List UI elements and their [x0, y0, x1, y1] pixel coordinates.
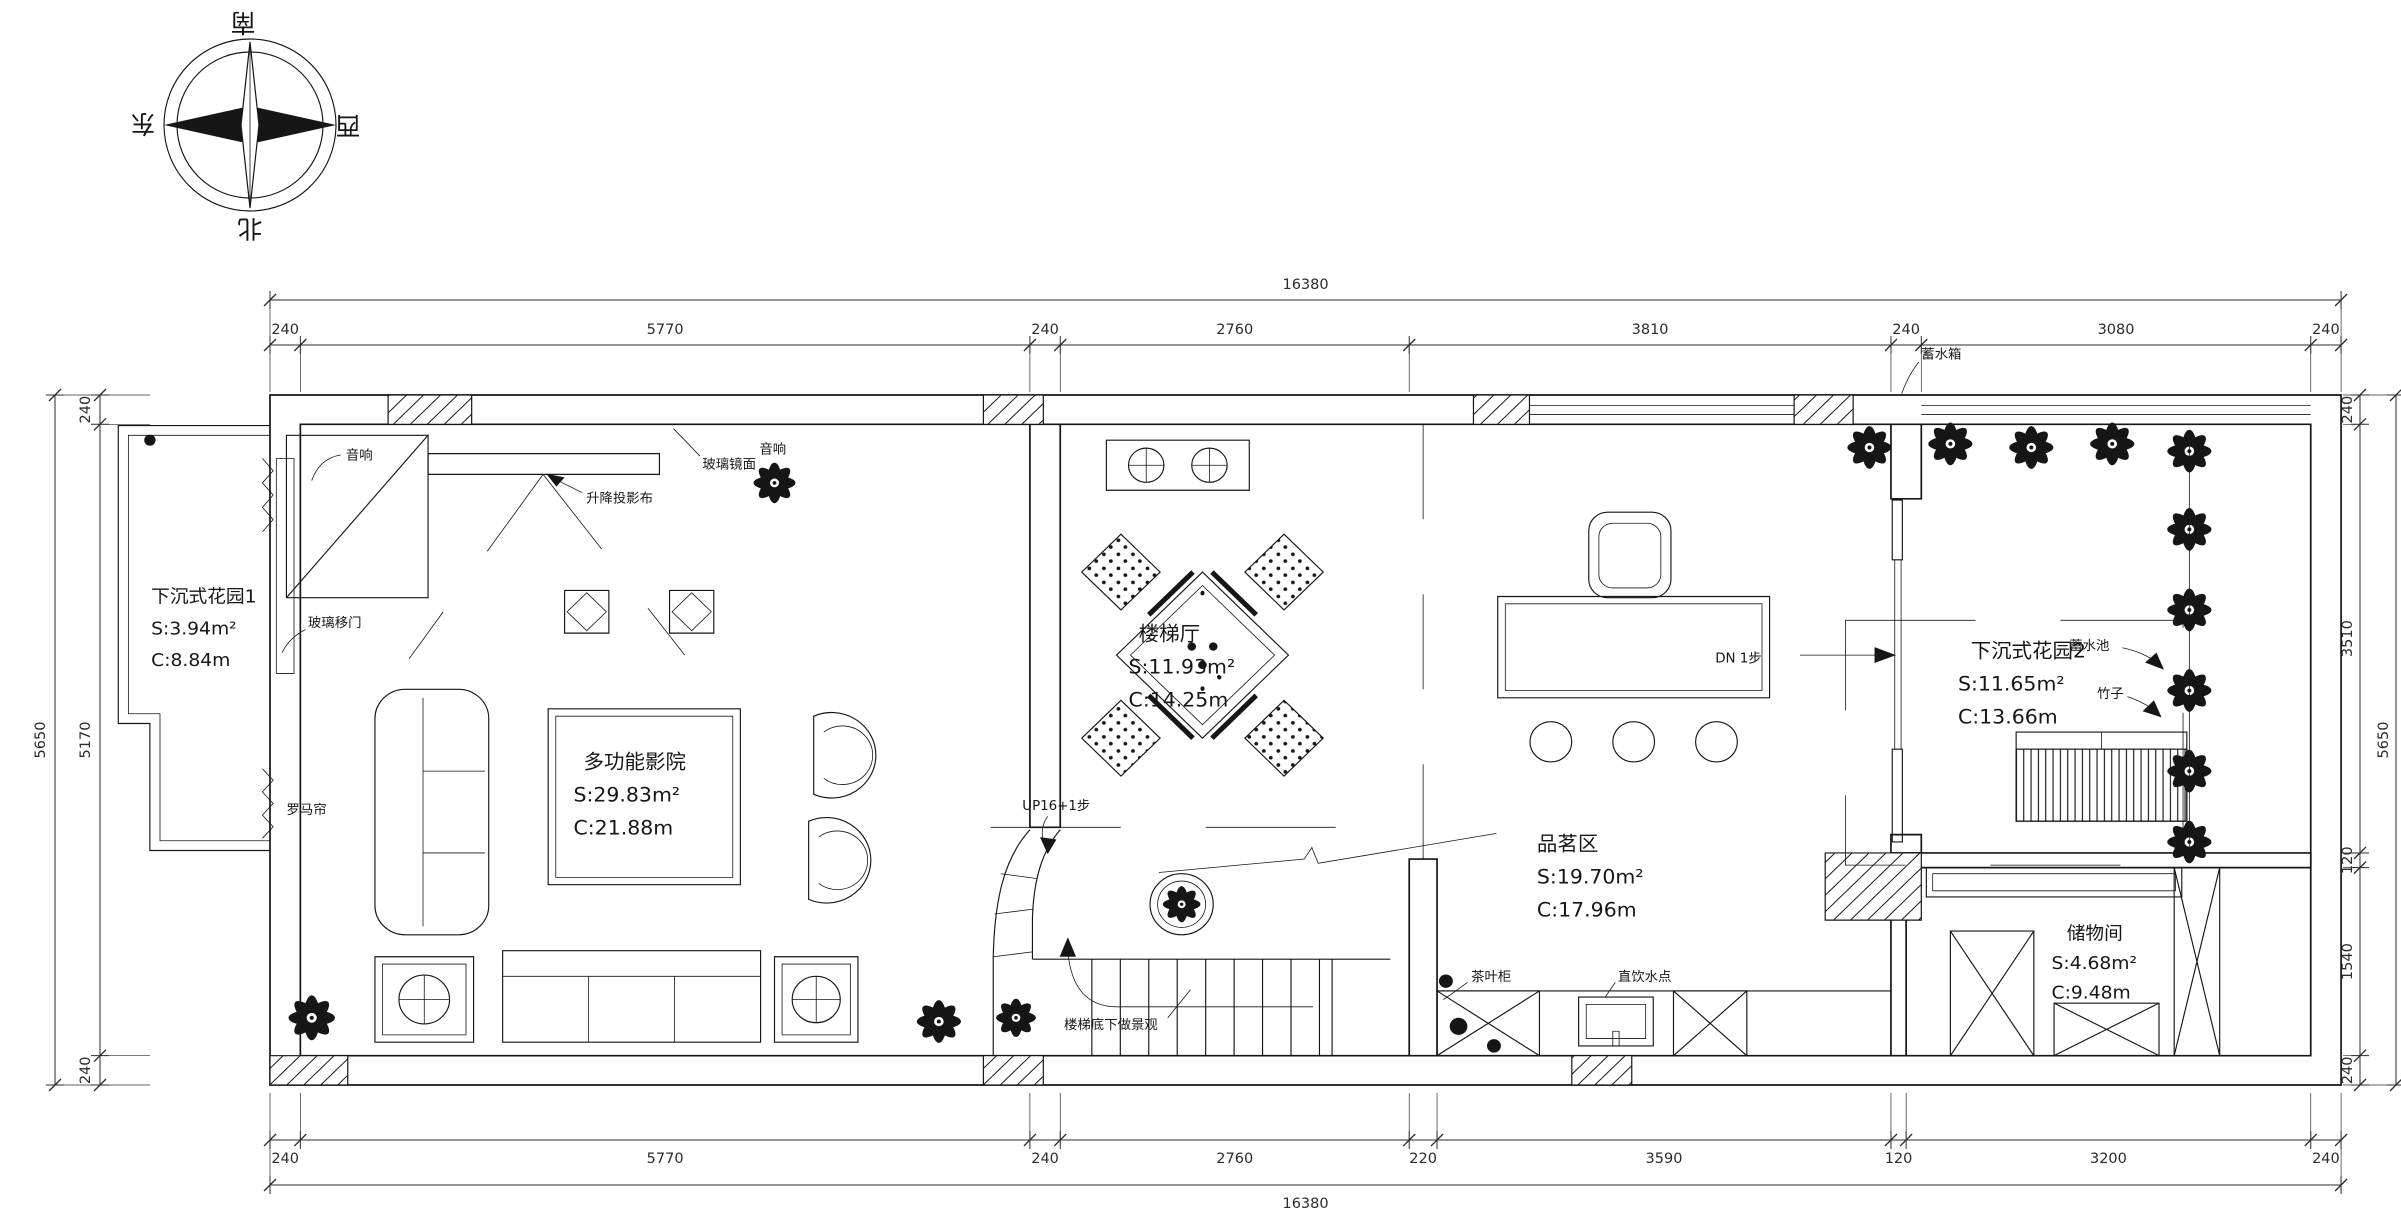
- speaker-label-2: 音响: [759, 441, 786, 458]
- storage-area: S:4.68m²: [2052, 953, 2137, 974]
- garden2-name: 下沉式花园2: [1971, 639, 2086, 663]
- plant-icon: [2090, 422, 2134, 465]
- dim-label: 240: [1031, 322, 1059, 338]
- wall-hatch: [983, 395, 1043, 424]
- tea-girth: C:17.96m: [1537, 898, 1637, 922]
- compass-label-north: 北: [237, 214, 262, 243]
- garden1-area: S:3.94m²: [151, 619, 236, 640]
- wall-hatch: [983, 1056, 1043, 1085]
- wall-hatch: [388, 395, 472, 424]
- projector-screen-label: 升降投影布: [586, 491, 653, 507]
- stairhall-area: S:11.93m²: [1129, 655, 1236, 679]
- garden1-girth: C:8.84m: [151, 650, 230, 671]
- plant-icon: [996, 999, 1036, 1037]
- dim-label: 3510: [2340, 620, 2356, 657]
- cinema-girth: C:21.88m: [573, 816, 673, 840]
- wall-hatch: [1473, 395, 1529, 424]
- tea-cabinet-label: 茶叶柜: [1471, 969, 1511, 985]
- wall-hatch: [1572, 1056, 1632, 1085]
- stairhall-girth: C:14.25m: [1129, 688, 1229, 712]
- wall-tea-garden2-upper: [1891, 424, 1921, 498]
- dim-label: 240: [2340, 1056, 2356, 1084]
- dim-label: 240: [1031, 1151, 1059, 1167]
- plan-geometry: 下沉式花园1 S:3.94m² C:8.84m: [118, 347, 2341, 1085]
- dim-label: 5770: [647, 322, 684, 338]
- dim-label: 5170: [78, 722, 94, 759]
- dim-label: 240: [1892, 322, 1920, 338]
- dim-label: 16380: [1282, 1196, 1328, 1212]
- tea-name: 品茗区: [1537, 832, 1598, 856]
- dim-label: 2760: [1216, 322, 1253, 338]
- room-garden1: 下沉式花园1 S:3.94m² C:8.84m: [118, 426, 270, 851]
- wall-hatch: [1794, 395, 1853, 424]
- water-pool-label: 蓄水池: [2069, 638, 2109, 654]
- wall-tea-garden2-lower: [1891, 835, 1921, 853]
- dim-label: 240: [271, 322, 299, 338]
- dim-label: 2760: [1216, 1151, 1253, 1167]
- dim-label: 5770: [647, 1151, 684, 1167]
- compass-label-south: 南: [230, 8, 255, 37]
- plant-icon: [753, 463, 795, 504]
- compass-label-west: 西: [335, 111, 360, 140]
- compass-rose: 南 北 东 西: [130, 8, 360, 243]
- dim-label: 3590: [1646, 1151, 1683, 1167]
- garden2-area: S:11.65m²: [1958, 672, 2065, 696]
- garden2-girth: C:13.66m: [1958, 705, 2058, 729]
- dim-label: 220: [1409, 1151, 1437, 1167]
- wall-hatch: [270, 1056, 348, 1085]
- dim-label: 5650: [33, 722, 49, 759]
- dim-label: 240: [2312, 1151, 2340, 1167]
- under-stair-label: 楼梯底下做景观: [1064, 1017, 1158, 1033]
- garden1-name: 下沉式花园1: [151, 587, 256, 608]
- storage-girth: C:9.48m: [2052, 983, 2131, 1004]
- water-tank-label: 蓄水箱: [1921, 347, 1961, 363]
- wall-cinema-stairhall: [1030, 424, 1060, 827]
- dim-label: 3810: [1632, 322, 1669, 338]
- plant-icon: [1847, 426, 1891, 469]
- dim-label: 3080: [2098, 322, 2135, 338]
- glass-mirror-label: 玻璃镜面: [702, 456, 756, 472]
- compass-label-east: 东: [130, 109, 155, 138]
- storage-name: 储物间: [2067, 924, 2123, 945]
- wall-hatch: [1825, 853, 1921, 920]
- dim-label: 1540: [2340, 943, 2356, 980]
- dim-label: 240: [2340, 396, 2356, 424]
- plant-icon: [288, 995, 334, 1040]
- tea-area: S:19.70m²: [1537, 865, 1644, 889]
- floorplan-page: { "compass": { "south": "南", "north": "北…: [0, 0, 2401, 1227]
- drinking-water-label: 直饮水点: [1618, 969, 1672, 985]
- cinema-name: 多功能影院: [584, 750, 686, 774]
- plant-icon: [2009, 426, 2053, 469]
- plant-icon: [1928, 422, 1972, 465]
- cinema-area: S:29.83m²: [573, 783, 680, 807]
- dim-label: 240: [271, 1151, 299, 1167]
- dn-step-label: DN 1步: [1715, 651, 1761, 667]
- plant-icon: [917, 1000, 961, 1043]
- dim-label: 120: [1885, 1151, 1913, 1167]
- plant-icon: [1163, 886, 1201, 922]
- dim-label: 16380: [1282, 277, 1328, 293]
- dim-label: 120: [2340, 846, 2356, 874]
- dim-label: 240: [2312, 322, 2340, 338]
- glass-door-label: 玻璃移门: [308, 615, 362, 631]
- dim-label: 240: [78, 1056, 94, 1084]
- bamboo-label: 竹子: [2097, 686, 2124, 702]
- dim-label: 5650: [2376, 722, 2392, 759]
- dim-label: 240: [78, 396, 94, 424]
- dim-label: 3200: [2090, 1151, 2127, 1167]
- roman-blind-label: 罗马帘: [286, 802, 326, 818]
- up-stairs-label: UP16+1步: [1022, 798, 1090, 814]
- wall-stub-tea: [1409, 859, 1437, 1056]
- stairhall-name: 楼梯厅: [1139, 622, 1200, 646]
- floor-plan-drawing: 南 北 东 西 16380240577024027603810240308024…: [0, 0, 2401, 1227]
- speaker-label: 音响: [346, 447, 373, 464]
